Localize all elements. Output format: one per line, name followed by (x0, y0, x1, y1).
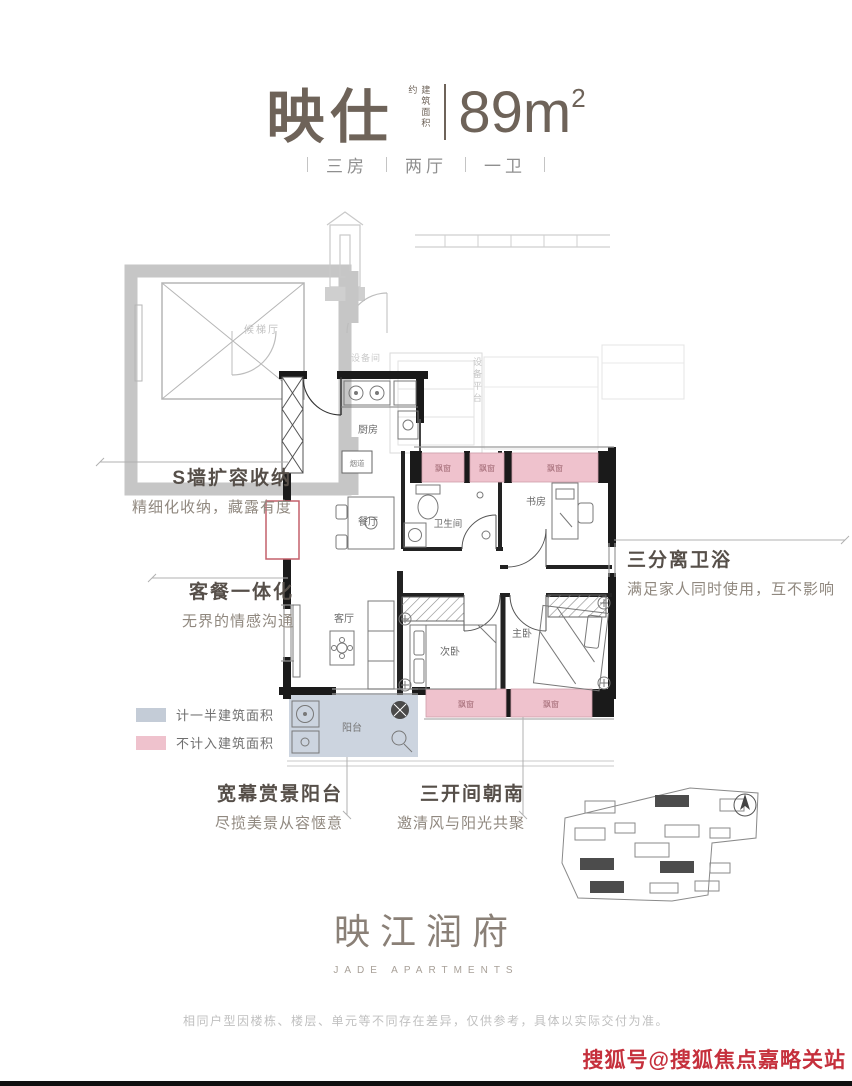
watermark: 搜狐号@搜狐焦点嘉略关站 (583, 1044, 846, 1074)
bay-window-label: 飘窗 (547, 463, 563, 473)
spec-halls: 两厅 (405, 152, 447, 177)
sofa (368, 601, 394, 689)
annotation-title: 宽幕赏景阳台 (215, 779, 343, 806)
annotation-living-dining: 客餐一体化 无界的情感沟通 (182, 577, 294, 631)
legend-label: 不计入建筑面积 (176, 733, 274, 752)
elevator-shaft-walls (131, 271, 345, 489)
annotation-balcony: 宽幕赏景阳台 尽揽美景从容惬意 (215, 779, 343, 833)
annotation-title: S墙扩容收纳 (132, 463, 292, 490)
bathroom-label: 卫生间 (434, 518, 463, 530)
balcony-label: 阳台 (342, 721, 362, 734)
entry-door (303, 377, 341, 415)
highlighted-building (655, 795, 689, 807)
site-plan (562, 788, 758, 901)
highlighted-building (590, 881, 624, 893)
stair-turret (325, 212, 365, 301)
tv-cabinet (293, 605, 300, 677)
plan-name: 映仕 (266, 70, 394, 154)
area-note: 建筑面积约 (406, 85, 432, 139)
kitchen-label: 厨房 (358, 423, 378, 436)
bay-window-label: 飘窗 (435, 463, 451, 473)
floor-drain (477, 492, 483, 498)
area-value: 89m (458, 79, 571, 146)
equipment-platform-label: 设备平台 (471, 357, 484, 405)
shower-drain (482, 531, 490, 539)
annotation-desc: 满足家人同时使用，互不影响 (627, 578, 835, 599)
annotation-title: 客餐一体化 (182, 577, 294, 604)
spec-baths: 一卫 (484, 152, 526, 177)
bay-window-label: 飘窗 (458, 699, 474, 709)
bay-windows-south (424, 689, 614, 719)
toilet (416, 485, 440, 519)
highlighted-building (660, 861, 694, 873)
spec-row: 三房 两厅 一卫 (0, 152, 852, 177)
coffee-table (330, 631, 354, 665)
poster-page: 映仕 建筑面积约 89m2 三房 两厅 一卫 (0, 0, 852, 1086)
bedroom2-label: 次卧 (440, 645, 460, 658)
lobby-label: 候梯厅 (244, 323, 280, 336)
bath-sink (404, 523, 426, 547)
master-wardrobe (548, 595, 606, 617)
plan-area: 89m2 (458, 79, 585, 146)
annotation-desc: 精细化收纳，藏露有度 (132, 496, 292, 517)
brand-logo: 映江润府 JADE APARTMENTS (0, 903, 852, 976)
study-desk (552, 483, 593, 539)
bay-window-label: 飘窗 (479, 463, 495, 473)
annotation-title: 三开间朝南 (397, 779, 525, 806)
legend-swatch-gray (136, 708, 166, 722)
highlighted-building (580, 858, 614, 870)
title-block: 映仕 建筑面积约 89m2 (0, 70, 852, 154)
legend: 计一半建筑面积 不计入建筑面积 (136, 705, 274, 761)
disclaimer: 相同户型因楼栋、楼层、单元等不同存在差异，仅供参考，具体以实际交付为准。 (0, 1012, 852, 1029)
lobby-door-arc (232, 331, 276, 375)
annotation-title: 三分离卫浴 (627, 545, 835, 572)
spec-bar (307, 157, 308, 172)
annotation-desc: 邀清风与阳光共聚 (397, 812, 525, 833)
brand-name-en: JADE APARTMENTS (0, 965, 852, 976)
spec-bar (465, 157, 466, 172)
area-superscript: 2 (571, 83, 585, 114)
legend-row-half-area: 计一半建筑面积 (136, 705, 274, 724)
equipment-room-label: 设备间 (351, 352, 381, 363)
living-label: 客厅 (334, 612, 354, 625)
annotation-south-rooms: 三开间朝南 邀清风与阳光共聚 (397, 779, 525, 833)
legend-swatch-pink (136, 736, 166, 750)
compass-icon (734, 794, 756, 816)
annotation-s-wall: S墙扩容收纳 精细化收纳，藏露有度 (132, 463, 292, 517)
spec-bar (386, 157, 387, 172)
legend-row-excluded-area: 不计入建筑面积 (136, 733, 274, 752)
brand-name-cn: 映江润府 (0, 903, 852, 955)
study-label: 书房 (526, 495, 546, 508)
equipment-platform-outline (390, 345, 684, 453)
bottom-border (0, 1081, 852, 1086)
kitchen-counter (341, 381, 418, 439)
flue-label: 烟道 (350, 458, 365, 468)
spec-bar (544, 157, 545, 172)
annotation-desc: 尽揽美景从容惬意 (215, 812, 343, 833)
bay-window-label: 飘窗 (543, 699, 559, 709)
title-divider (444, 84, 446, 140)
master-label: 主卧 (512, 627, 532, 640)
s-wall-storage (282, 377, 303, 473)
interior-walls (400, 451, 612, 717)
legend-label: 计一半建筑面积 (176, 705, 274, 724)
dining-label: 餐厅 (358, 515, 378, 528)
master-bed (533, 605, 608, 690)
spec-bedrooms: 三房 (326, 152, 368, 177)
annotation-desc: 无界的情感沟通 (182, 610, 294, 631)
annotation-bathroom: 三分离卫浴 满足家人同时使用，互不影响 (627, 545, 835, 599)
